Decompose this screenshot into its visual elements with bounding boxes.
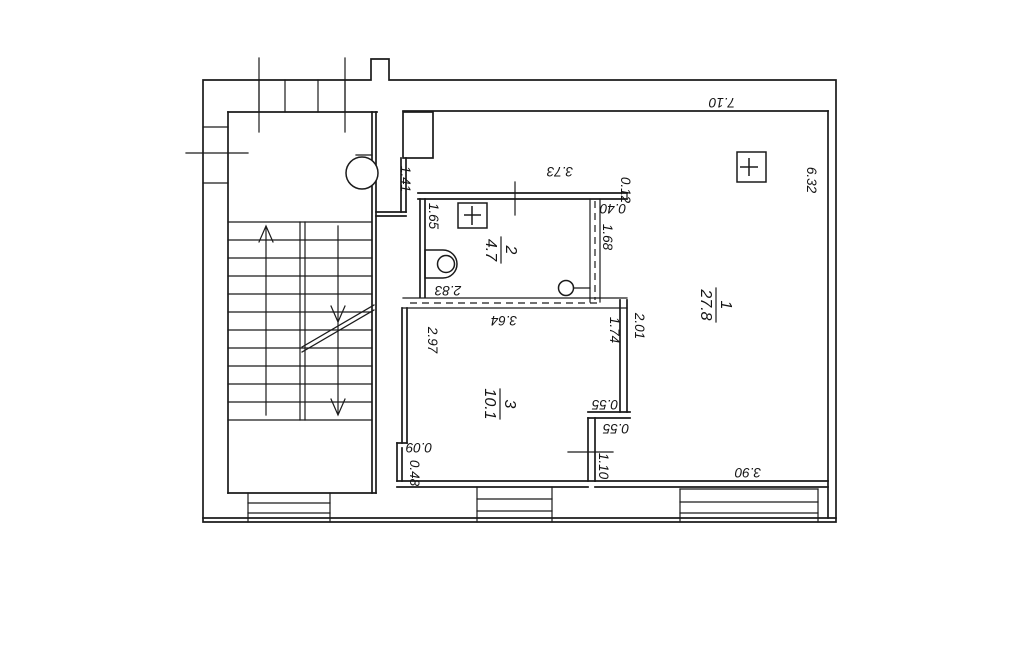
floor-plan-page: 7.10 6.32 1.41 3.73 0.12 0.40 1.68 1.65 … xyxy=(0,0,1024,654)
room2-number: 2 xyxy=(502,245,519,255)
vent-cross-marker-icon xyxy=(458,203,487,228)
dim-alcove: 1.41 xyxy=(398,166,413,192)
stair-treads xyxy=(228,222,372,420)
dim-room2-width: 3.73 xyxy=(546,164,573,179)
stair-down-arrow-icon xyxy=(331,226,345,415)
stair-up-arrow-icon xyxy=(259,226,273,415)
vent-cross-marker2-icon xyxy=(737,152,766,182)
staircase xyxy=(228,112,378,493)
dim-room1-width: 7.10 xyxy=(708,95,735,110)
dim-divider-inner: 1.74 xyxy=(607,317,622,343)
duct-recess xyxy=(403,112,433,158)
dim-room3-top: 3.64 xyxy=(491,313,517,328)
toilet-icon xyxy=(425,250,457,278)
axis-ticks xyxy=(186,58,613,452)
dim-notch-depth: 0.09 xyxy=(405,440,432,455)
room3-area: 10.1 xyxy=(481,388,498,419)
building-outline xyxy=(203,59,836,522)
room1-area: 27.8 xyxy=(697,288,714,320)
dim-room2-bottom: 2.83 xyxy=(434,283,462,298)
dim-wall-offset: 0.12 xyxy=(618,177,633,204)
dim-partition-stub: 0.40 xyxy=(599,201,626,216)
dim-divider-outer: 2.01 xyxy=(632,312,647,339)
interior-walls xyxy=(376,111,828,487)
room2-area: 4.7 xyxy=(482,239,499,262)
dim-window-wall: 1.10 xyxy=(596,453,611,480)
dim-balcony: 3.90 xyxy=(734,465,761,480)
door-handle-icon xyxy=(559,281,591,296)
dim-partition-height: 1.68 xyxy=(600,224,615,251)
balcony xyxy=(680,489,818,522)
dim-notch-height: 0.48 xyxy=(407,460,422,487)
dim-room2-left: 1.65 xyxy=(426,203,441,230)
room3-number: 3 xyxy=(501,400,518,409)
dim-step-lower: 0.55 xyxy=(602,421,629,436)
floor-plan-drawing: 7.10 6.32 1.41 3.73 0.12 0.40 1.68 1.65 … xyxy=(0,0,1024,654)
room3-label: 3 10.1 xyxy=(481,388,518,419)
garbage-chute-icon xyxy=(346,157,378,189)
masonry-wall-divisions xyxy=(203,80,345,183)
steps-middle xyxy=(477,487,552,522)
dashed-partition-horizontal xyxy=(403,298,627,308)
dim-room1-height: 6.32 xyxy=(804,167,819,194)
room1-label: 1 27.8 xyxy=(697,288,734,322)
room2-label: 2 4.7 xyxy=(482,237,519,263)
room1-number: 1 xyxy=(717,301,734,310)
dim-room3-left: 2.97 xyxy=(425,326,440,354)
dimension-labels: 7.10 6.32 1.41 3.73 0.12 0.40 1.68 1.65 … xyxy=(398,95,819,487)
dim-step-upper: 0.55 xyxy=(591,397,618,412)
dashed-partition-vertical xyxy=(590,199,600,302)
